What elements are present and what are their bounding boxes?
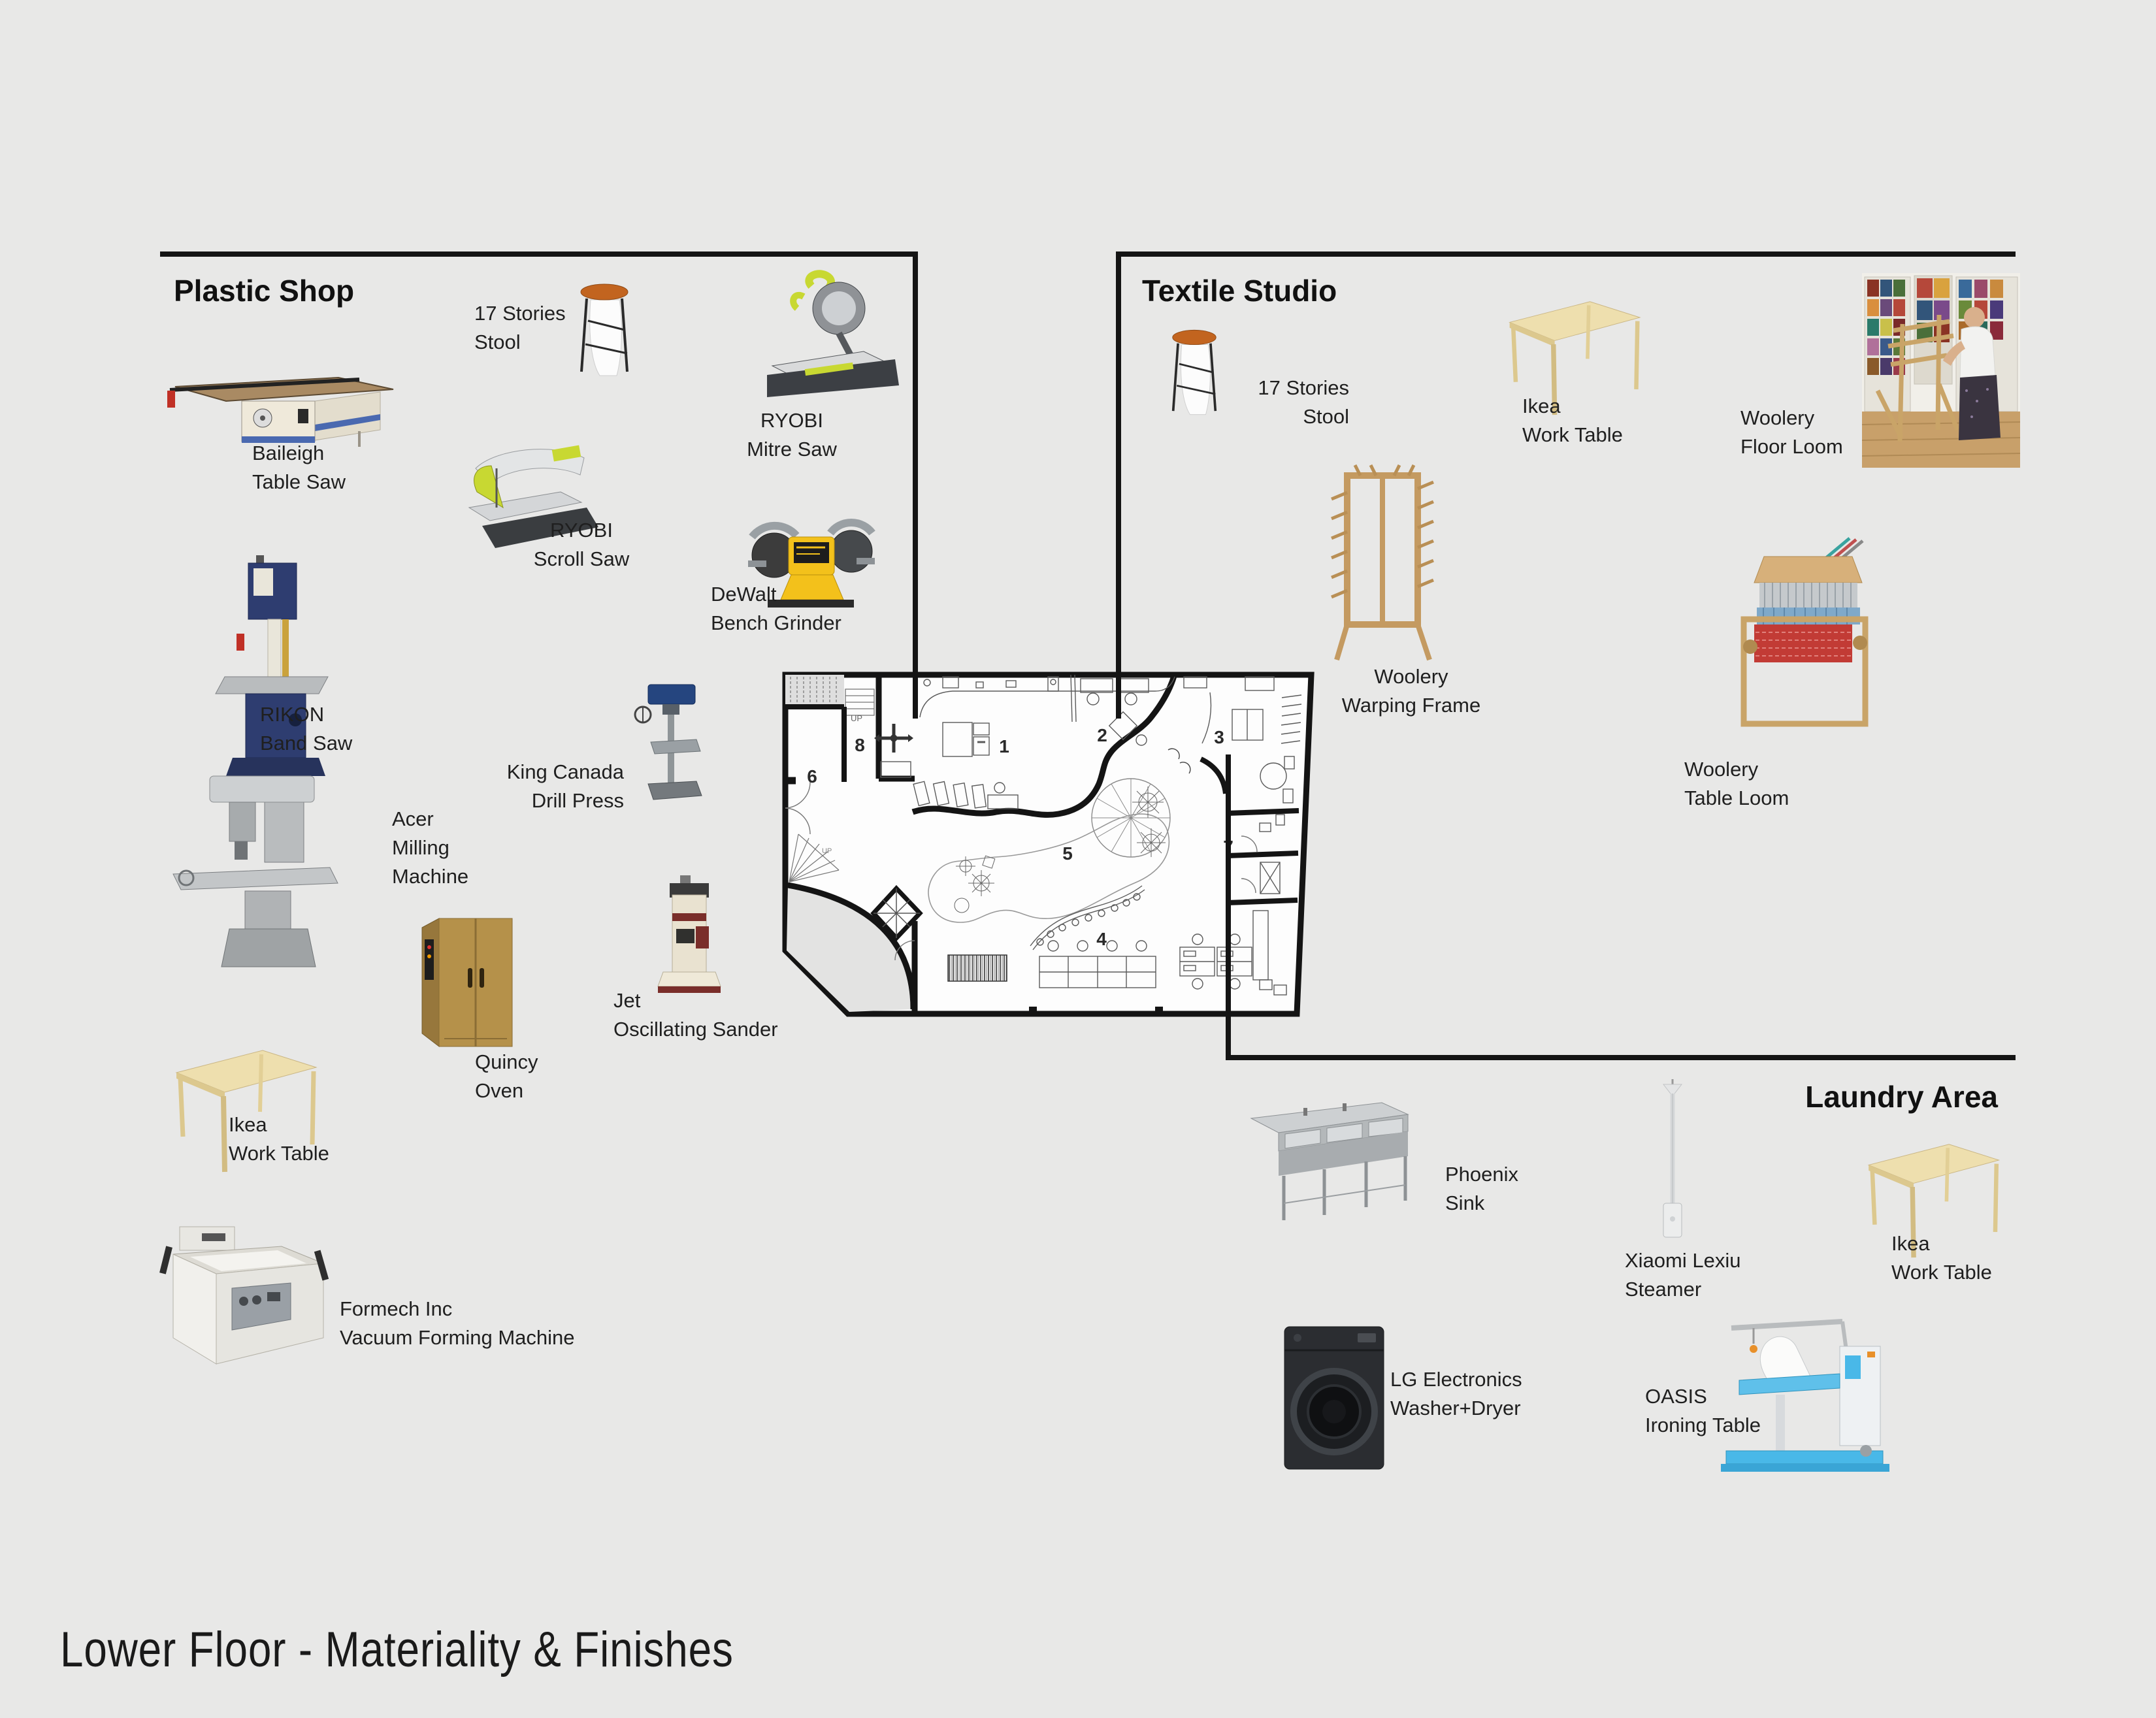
label-phoenix-sink: Phoenix Sink (1445, 1160, 1518, 1218)
stair-block (785, 675, 844, 707)
up-label-bottom: UP (822, 847, 832, 855)
stool-image-plastic (562, 278, 647, 382)
label-line: Table Saw (252, 468, 346, 496)
label-line: Woolery (1320, 662, 1503, 691)
label-line: Work Table (229, 1139, 329, 1168)
label-line: 17 Stories (474, 299, 566, 328)
label-acer-milling-machine: Acer Milling Machine (392, 805, 468, 891)
woolery-table-loom-image (1728, 536, 1882, 745)
label-line: Acer (392, 805, 468, 834)
label-lg-washer-dryer: LG Electronics Washer+Dryer (1390, 1365, 1522, 1423)
laundry-area-leader-line (1226, 754, 1231, 1057)
floor-plan: UP UP (781, 670, 1343, 1035)
label-woolery-table-loom: Woolery Table Loom (1684, 755, 1789, 813)
rikon-band-saw-image (191, 555, 367, 794)
label-formech-vacuum-forming: Formech Inc Vacuum Forming Machine (340, 1295, 575, 1352)
label-line: Phoenix (1445, 1160, 1518, 1189)
label-line: Drill Press (493, 786, 624, 815)
label-line: Steamer (1625, 1275, 1740, 1304)
xiaomi-steamer-image (1646, 1078, 1699, 1248)
label-line: Quincy (475, 1048, 538, 1077)
shelf-hatched (948, 955, 1007, 981)
label-dewalt-bench-grinder: DeWalt Bench Grinder (711, 580, 841, 638)
label-quincy-oven: Quincy Oven (475, 1048, 538, 1105)
label-line: King Canada (493, 758, 624, 786)
label-line: Bench Grinder (711, 609, 841, 638)
label-line: Ironing Table (1645, 1411, 1761, 1440)
page-title: Lower Floor - Materiality & Finishes (60, 1621, 734, 1678)
label-line: Warping Frame (1320, 691, 1503, 720)
room-number-8: 8 (855, 735, 865, 755)
label-line: OASIS (1645, 1382, 1761, 1411)
label-line: Mitre Saw (713, 435, 870, 464)
label-line: Xiaomi Lexiu (1625, 1246, 1740, 1275)
door-stop (1029, 1007, 1037, 1014)
label-line: Floor Loom (1740, 432, 1843, 461)
plastic-shop-leader-line (913, 251, 918, 719)
label-woolery-warping-frame: Woolery Warping Frame (1320, 662, 1503, 720)
room-number-5: 5 (1062, 843, 1073, 864)
king-canada-drill-press-image (629, 679, 723, 810)
label-baileigh-table-saw: Baileigh Table Saw (252, 439, 346, 496)
room-number-1: 1 (999, 736, 1009, 756)
phoenix-sink-image (1245, 1092, 1424, 1236)
formech-vacuum-forming-machine-image (154, 1208, 343, 1378)
label-line: Sink (1445, 1189, 1518, 1218)
label-stool-plastic: 17 Stories Stool (474, 299, 566, 357)
door-stop (1155, 1007, 1163, 1014)
textile-studio-title: Textile Studio (1142, 273, 1337, 308)
label-line: Work Table (1522, 421, 1623, 449)
acer-milling-machine-image (167, 771, 372, 980)
label-rikon-band-saw: RIKON Band Saw (260, 700, 352, 758)
up-label-top: UP (851, 713, 862, 723)
spiral-stair (1092, 779, 1170, 857)
label-line: Ikea (1522, 392, 1623, 421)
label-line: Oscillating Sander (613, 1015, 778, 1044)
label-line: RIKON (260, 700, 352, 729)
room-number-6: 6 (807, 766, 817, 786)
room-number-2: 2 (1097, 725, 1107, 745)
label-line: RYOBI (713, 406, 870, 435)
woolery-warping-frame-image (1326, 464, 1444, 663)
label-line: Ikea (229, 1110, 329, 1139)
label-ikea-work-table-textile: Ikea Work Table (1522, 392, 1623, 449)
quincy-oven-image (410, 908, 528, 1058)
label-ikea-work-table-laundry: Ikea Work Table (1891, 1229, 1992, 1287)
textile-studio-leader-line (1116, 251, 1121, 719)
label-line: Oven (475, 1077, 538, 1105)
woolery-floor-loom-photo (1862, 273, 2020, 468)
label-line: RYOBI (503, 516, 660, 545)
label-line: Vacuum Forming Machine (340, 1323, 575, 1352)
label-ikea-work-table-plastic: Ikea Work Table (229, 1110, 329, 1168)
label-line: Band Saw (260, 729, 352, 758)
ryobi-mitre-saw-image (766, 268, 900, 408)
label-line: LG Electronics (1390, 1365, 1522, 1394)
label-line: 17 Stories (1235, 374, 1349, 402)
presentation-board: Plastic Shop Textile Studio Laundry Area (0, 0, 2156, 1718)
label-ryobi-scroll-saw: RYOBI Scroll Saw (503, 516, 660, 574)
label-line: Baileigh (252, 439, 346, 468)
label-jet-oscillating-sander: Jet Oscillating Sander (613, 986, 778, 1044)
label-ryobi-mitre-saw: RYOBI Mitre Saw (713, 406, 870, 464)
label-line: Machine (392, 862, 468, 891)
label-line: Jet (613, 986, 778, 1015)
room-number-3: 3 (1214, 727, 1224, 747)
label-line: Table Loom (1684, 784, 1789, 813)
textile-studio-top-rule (1116, 251, 2016, 257)
plastic-shop-top-rule (160, 251, 918, 257)
label-line: Stool (474, 328, 566, 357)
baileigh-table-saw-image (163, 353, 399, 451)
label-woolery-floor-loom: Woolery Floor Loom (1740, 404, 1843, 461)
lg-washer-dryer-image (1281, 1323, 1388, 1473)
stool-image-textile (1155, 323, 1233, 421)
plastic-shop-title: Plastic Shop (174, 273, 354, 308)
label-line: Milling (392, 834, 468, 862)
laundry-area-title: Laundry Area (1699, 1079, 1998, 1114)
label-line: Ikea (1891, 1229, 1992, 1258)
label-line: Woolery (1740, 404, 1843, 432)
laundry-area-rule (1226, 1055, 2016, 1060)
label-oasis-ironing-table: OASIS Ironing Table (1645, 1382, 1761, 1440)
label-line: Woolery (1684, 755, 1789, 784)
label-line: Formech Inc (340, 1295, 575, 1323)
label-line: Scroll Saw (503, 545, 660, 574)
label-line: Washer+Dryer (1390, 1394, 1522, 1423)
label-line: Work Table (1891, 1258, 1992, 1287)
label-line: Stool (1235, 402, 1349, 431)
room-number-4: 4 (1096, 929, 1107, 949)
label-xiaomi-steamer: Xiaomi Lexiu Steamer (1625, 1246, 1740, 1304)
label-stool-textile: 17 Stories Stool (1235, 374, 1349, 431)
label-line: DeWalt (711, 580, 841, 609)
label-king-canada-drill-press: King Canada Drill Press (493, 758, 624, 815)
